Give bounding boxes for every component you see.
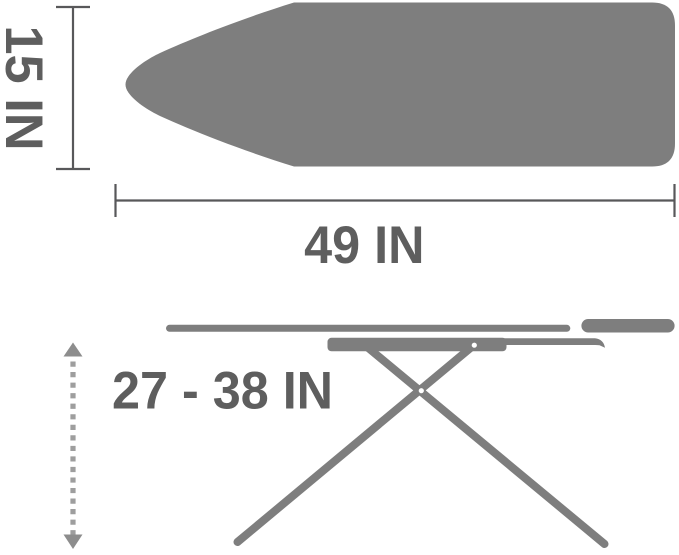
svg-text:27 - 38 IN: 27 - 38 IN [112,360,333,419]
svg-text:15 IN: 15 IN [0,25,53,150]
svg-text:49 IN: 49 IN [304,215,424,274]
